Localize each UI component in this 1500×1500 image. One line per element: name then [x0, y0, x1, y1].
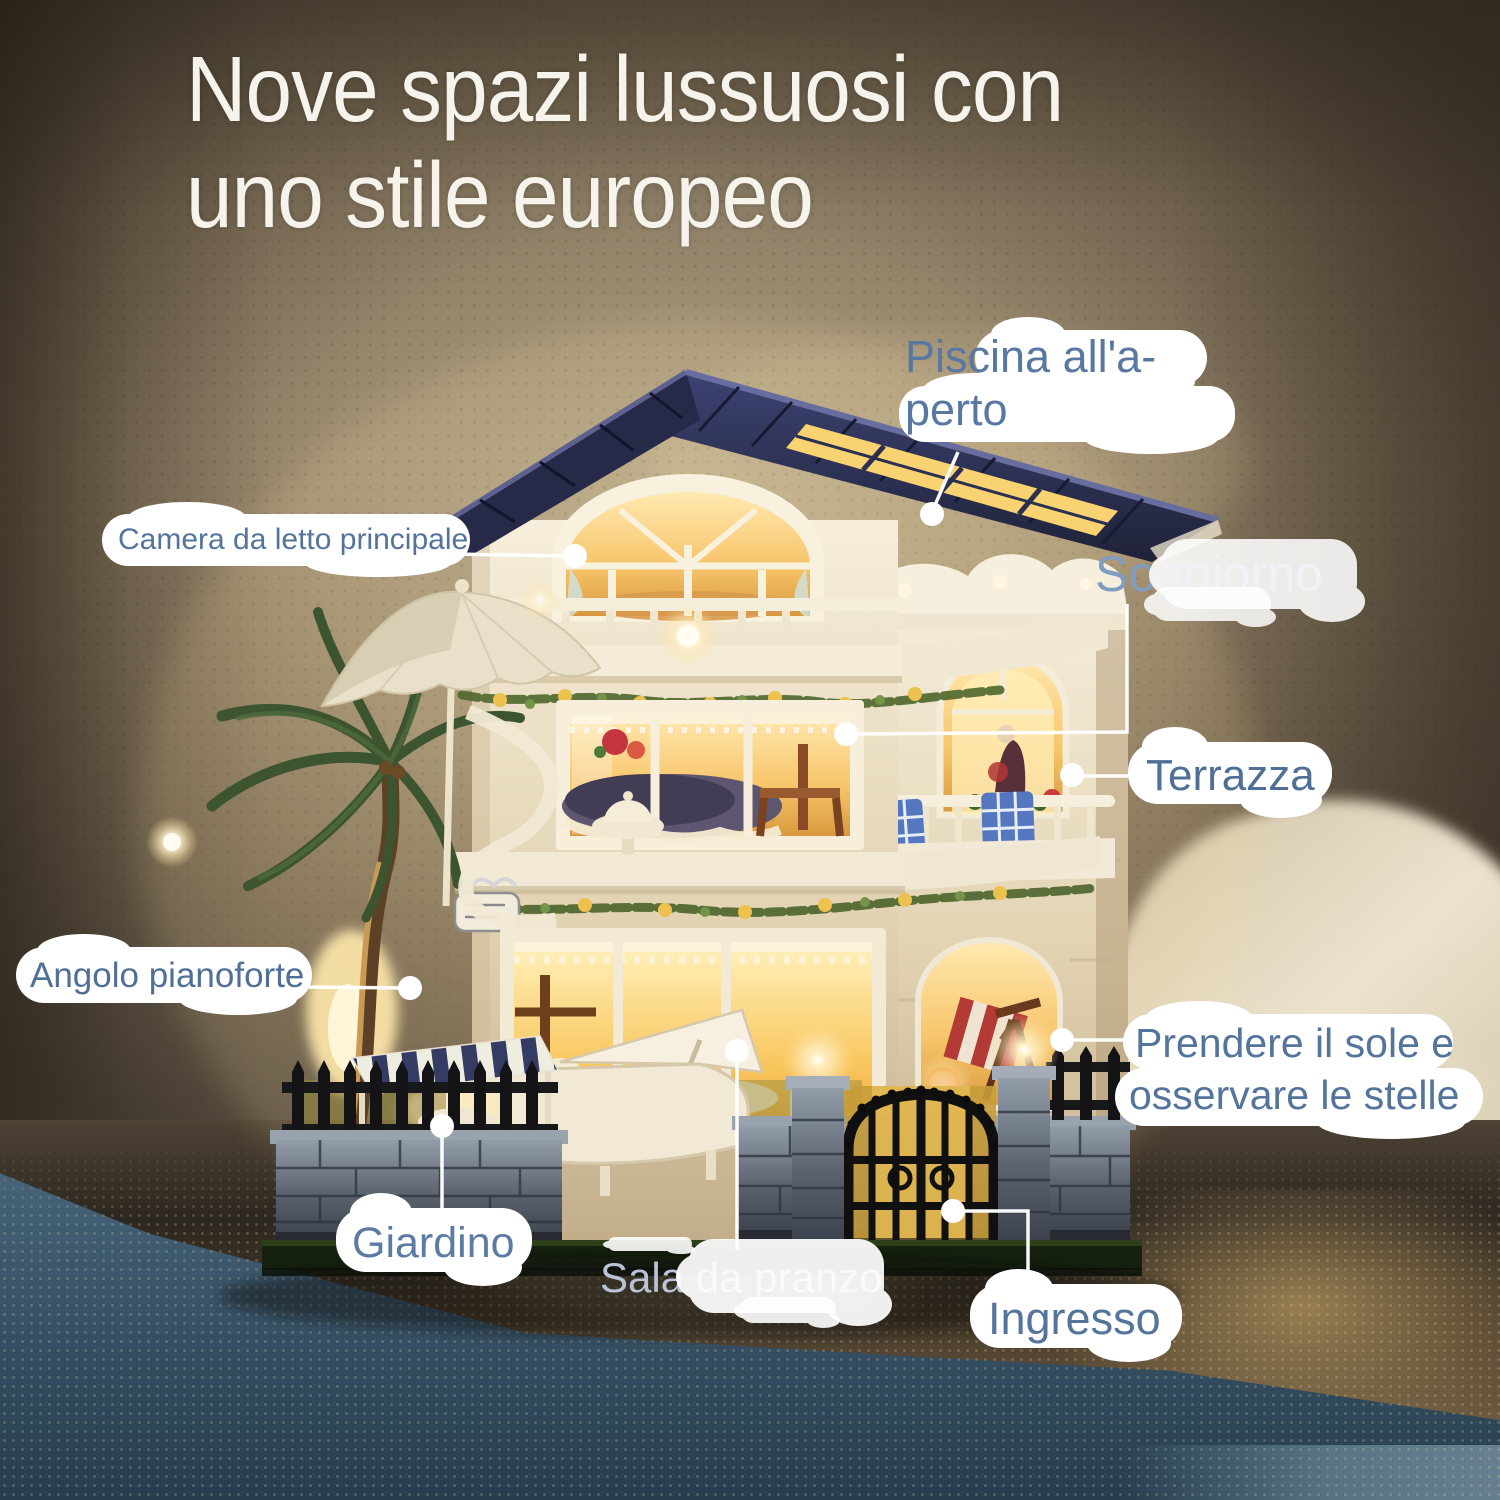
- leader-dot-entrance: [941, 1199, 965, 1223]
- label-pool-line1: Piscina all'a-: [905, 330, 1156, 383]
- leader-dot-master-bedroom: [563, 544, 587, 568]
- scribble-over: [740, 1297, 836, 1323]
- scribble-over: [608, 1237, 692, 1251]
- gate-pillar-left: [782, 1024, 854, 1242]
- callout-master-bedroom: Camera da letto principale: [118, 522, 468, 557]
- leader-dot-garden: [430, 1114, 454, 1138]
- title-line-1: Nove spazi lussuosi con: [186, 36, 1063, 142]
- product-infographic: Nove spazi lussuosi con uno stile europe…: [0, 0, 1500, 1500]
- label-terrace: Terrazza: [1146, 750, 1315, 802]
- leader-master-bedroom: [452, 554, 566, 556]
- callout-living-room: Soggiorno: [1095, 545, 1323, 604]
- callout-piano-corner: Angolo pianoforte: [30, 955, 304, 996]
- page-title: Nove spazi lussuosi con uno stile europe…: [186, 36, 1063, 248]
- callout-dining-room: Sala da pranzo: [600, 1253, 883, 1303]
- leader-dot-pool: [920, 502, 944, 526]
- label-sunbathing-line1: Prendere il sole e: [1135, 1018, 1459, 1070]
- callout-terrace: Terrazza: [1146, 750, 1315, 802]
- leader-dot-terrace: [1060, 763, 1084, 787]
- leader-dot-living-room: [834, 722, 858, 746]
- title-line-2: uno stile europeo: [186, 142, 1063, 248]
- label-garden: Giardino: [352, 1218, 515, 1269]
- leader-dot-piano-corner: [398, 976, 422, 1000]
- label-sunbathing-line2: osservare le stelle: [1129, 1070, 1459, 1122]
- label-piano-corner: Angolo pianoforte: [30, 955, 304, 996]
- callout-entrance: Ingresso: [988, 1292, 1161, 1345]
- leader-dot-dining-room: [725, 1039, 749, 1063]
- gate-pillar-right: [988, 1014, 1060, 1242]
- leader-dot-sunbathing: [1050, 1028, 1074, 1052]
- label-master-bedroom: Camera da letto principale: [118, 522, 468, 557]
- callout-garden: Giardino: [352, 1218, 515, 1269]
- label-pool-line2: perto: [905, 383, 1156, 436]
- scribble-over: [1151, 587, 1271, 621]
- callout-pool: Piscina all'a- perto: [905, 330, 1156, 436]
- callout-sunbathing: Prendere il sole e osservare le stelle: [1135, 1018, 1459, 1121]
- label-entrance: Ingresso: [988, 1292, 1161, 1345]
- leader-piano-corner: [300, 987, 404, 988]
